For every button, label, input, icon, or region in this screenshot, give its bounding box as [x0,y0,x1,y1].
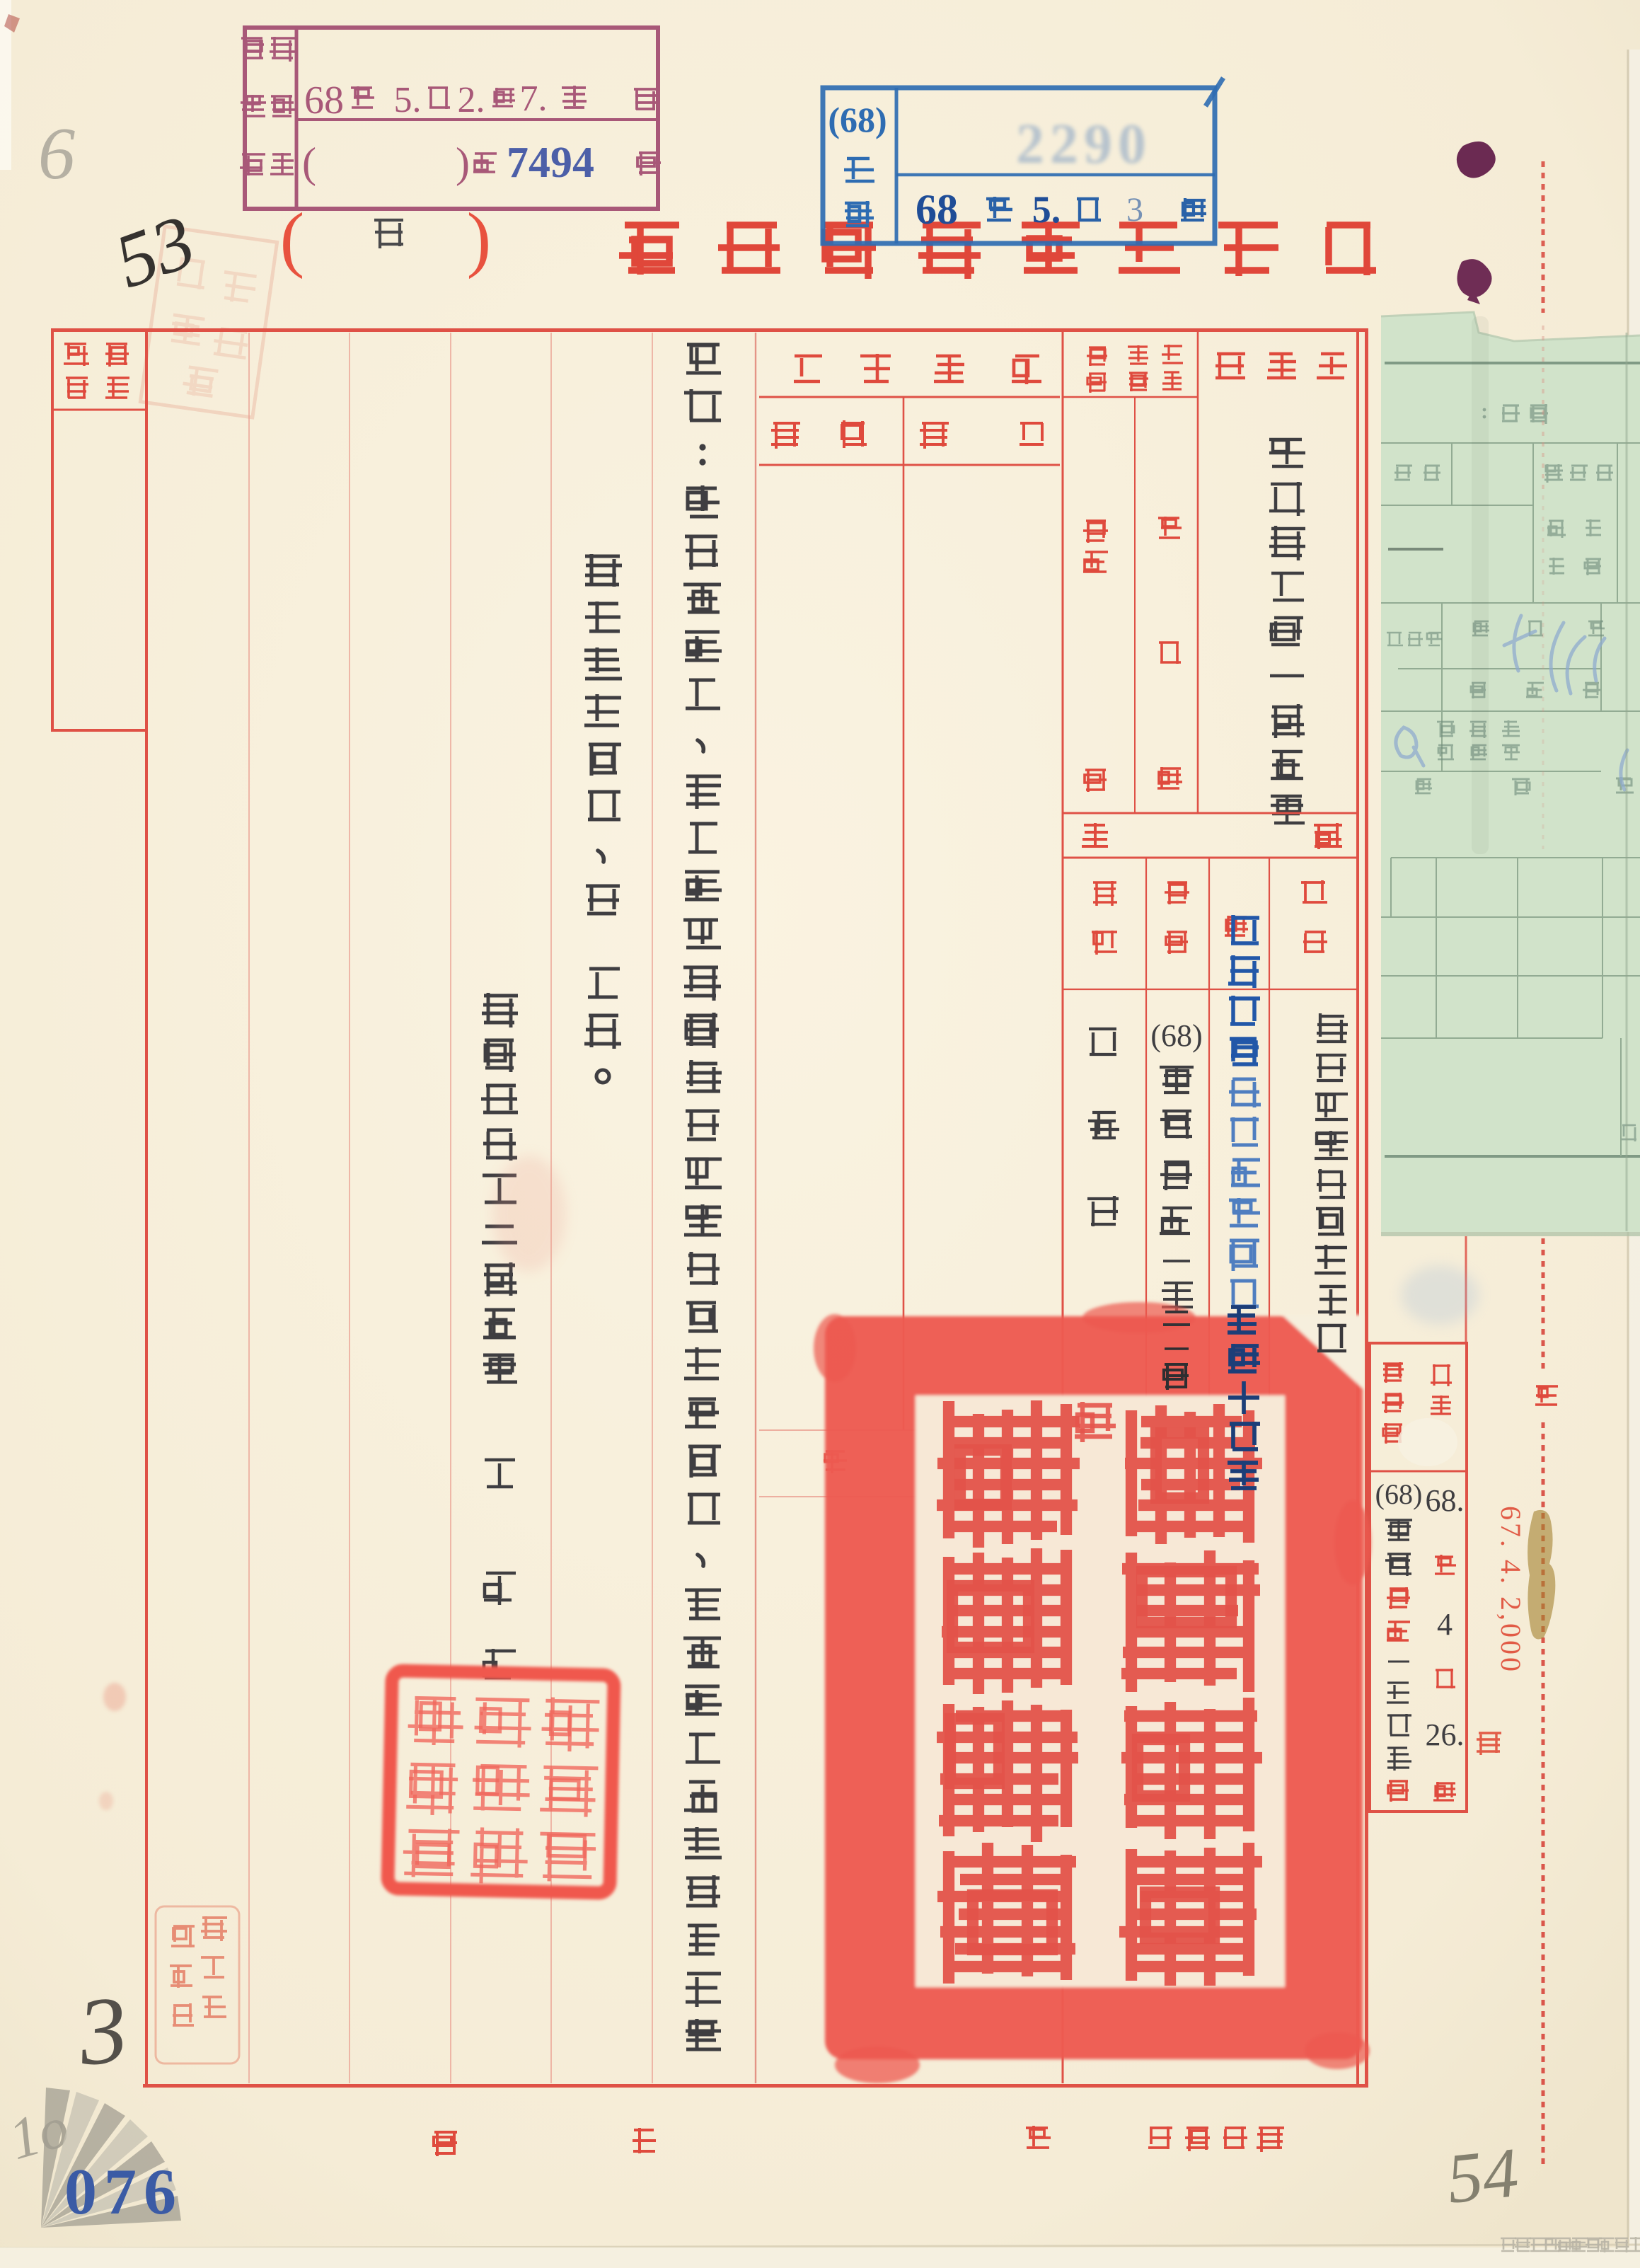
svg-text:(68): (68) [1375,1478,1423,1510]
svg-text:): ) [467,198,492,280]
svg-text:6: 6 [38,112,76,195]
svg-text:2.: 2. [458,80,485,120]
svg-text:7494: 7494 [507,139,594,187]
svg-text:5.: 5. [1032,188,1061,231]
svg-text:): ) [456,139,470,186]
svg-text:67. 4. 2,000: 67. 4. 2,000 [1495,1506,1527,1674]
svg-text:(: ( [302,139,316,186]
svg-text:4: 4 [1437,1607,1453,1642]
svg-text:(68): (68) [1150,1018,1202,1053]
svg-text:7.: 7. [520,79,548,119]
svg-text:68.: 68. [1426,1483,1465,1518]
svg-text:68: 68 [304,79,344,122]
svg-text:076: 076 [64,2155,183,2228]
svg-text:2290: 2290 [1016,113,1152,175]
svg-text:5.: 5. [394,80,422,120]
svg-text:54: 54 [1443,2133,1522,2218]
svg-text:(68): (68) [828,100,887,139]
svg-text:68: 68 [916,186,958,233]
svg-text:26.: 26. [1426,1717,1465,1752]
svg-text:3: 3 [1126,191,1143,229]
svg-text:(: ( [280,198,305,280]
